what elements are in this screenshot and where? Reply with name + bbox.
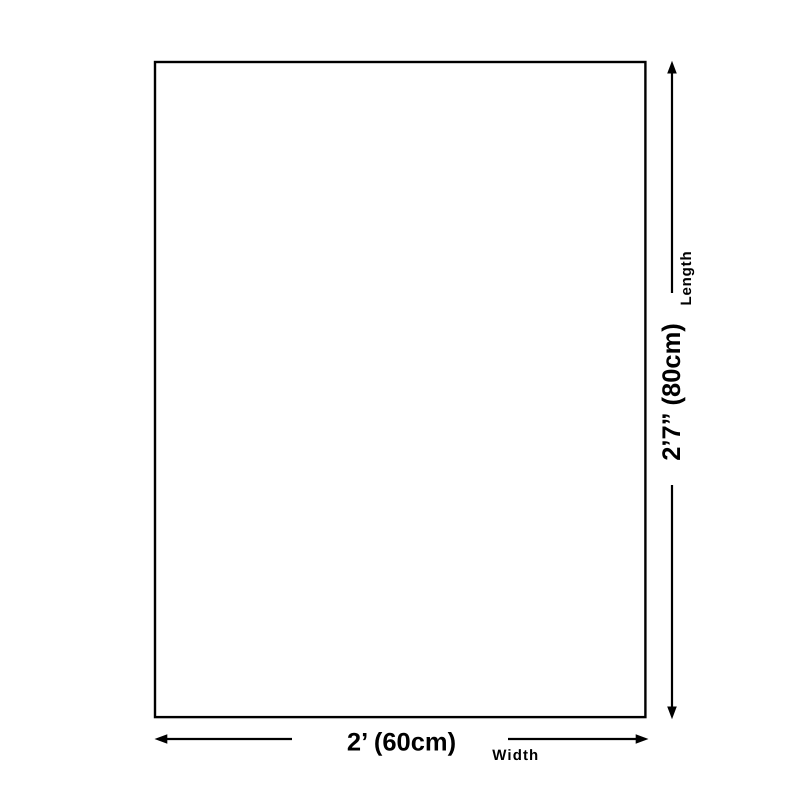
svg-text:Width: Width <box>492 747 539 764</box>
svg-text:2’ (60cm): 2’ (60cm) <box>347 729 456 757</box>
svg-text:Length: Length <box>678 250 695 305</box>
svg-text:2’7” (80cm): 2’7” (80cm) <box>658 323 686 461</box>
